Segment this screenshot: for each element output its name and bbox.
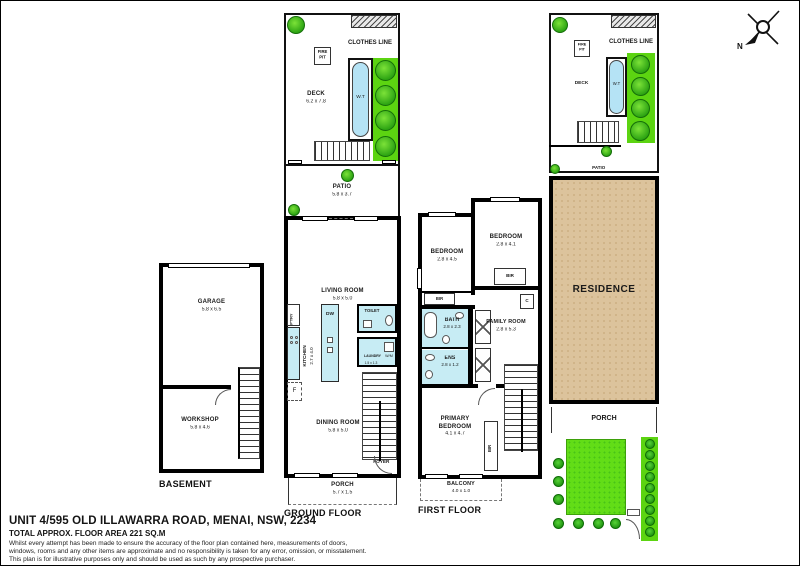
balcony: BALCONY 4.0 x 1.0 [420, 479, 502, 501]
first-floor-plan: BEDROOM 2.8 x 4.5 BEDROOM 2.8 x 4.1 BIR … [418, 198, 542, 508]
primary-name: PRIMARY BEDROOM [426, 416, 484, 431]
family-name: FAMILY ROOM [478, 319, 534, 326]
basin-fixture [363, 320, 372, 328]
first-floor-stairs [504, 364, 538, 451]
address-line: UNIT 4/595 OLD ILLAWARRA ROAD, MENAI, NS… [9, 515, 649, 527]
cooktop-burner [290, 341, 293, 344]
fridge: F [287, 382, 302, 401]
fire-pit-label: FIRE PIT [578, 43, 587, 53]
room-label-porch: PORCH 5.7 x 1.5 [289, 482, 396, 497]
cooktop-burner [290, 336, 293, 339]
room-label-workshop: WORKSHOP 5.8 x 4.6 [163, 417, 237, 432]
ensuite: ENS 2.8 x 1.2 [422, 350, 468, 384]
toilet-fixture [425, 370, 433, 379]
ground-deck-area: CLOTHES LINE FIRE PIT DECK 6.2 x 7.8 W.T [284, 13, 400, 166]
site-porch: PORCH [551, 407, 657, 433]
room-label-bedroom-right: BEDROOM 2.8 x 4.1 [481, 234, 531, 249]
patio-name: PATIO [286, 184, 398, 192]
tree-icon [630, 121, 650, 141]
tree-icon [288, 204, 300, 216]
porch-label: PORCH [552, 415, 656, 424]
room-label-family: FAMILY ROOM 2.8 x 5.3 [475, 319, 537, 334]
room-label-kitchen: KITCHEN 2.7 x 4.0 [302, 327, 316, 385]
bir-label: BIR [429, 297, 449, 302]
door-arc [478, 388, 495, 405]
address-block: UNIT 4/595 OLD ILLAWARRA ROAD, MENAI, NS… [9, 515, 649, 564]
deck-stairs [314, 141, 370, 161]
shrub-icon [645, 472, 655, 482]
clothes-line-label: CLOTHES LINE [342, 30, 398, 50]
bath-name: BATH [438, 318, 465, 324]
window [382, 160, 396, 164]
deck-name: DECK [575, 81, 589, 87]
kitchen-counter [287, 327, 300, 380]
porch-dims: 5.7 x 1.5 [297, 490, 388, 496]
room-label-ens: ENS 2.8 x 1.2 [434, 355, 466, 370]
shrub-icon [645, 439, 655, 449]
room-label-balcony: BALCONY 4.0 x 1.0 [421, 481, 501, 496]
basement-plan: GARAGE 5.8 x 6.5 WORKSHOP 5.8 x 4.6 [159, 263, 264, 473]
pantry-label: P'TRY [290, 313, 294, 325]
room-label-living: LIVING ROOM 5.8 x 5.0 [288, 288, 397, 303]
room-label-bedroom-left: BEDROOM 2.8 x 4.5 [424, 249, 470, 264]
clothes-line-text: CLOTHES LINE [609, 39, 653, 45]
living-name: LIVING ROOM [288, 288, 397, 296]
shrub-icon [645, 483, 655, 493]
water-tank-box: W.T [348, 58, 373, 141]
window [354, 216, 378, 221]
wall [468, 305, 473, 388]
site-plan: CLOTHES LINE FIRE PIT DECK W.T PATIO RES… [549, 13, 661, 545]
linen-closet [475, 348, 491, 382]
garage-name: GARAGE [163, 299, 260, 307]
first-floor-title: FIRST FLOOR [418, 505, 481, 515]
bedroom-name: BEDROOM [424, 249, 470, 257]
kitchen-name: KITCHEN [303, 333, 308, 379]
dishwasher-label: DW [324, 312, 337, 318]
compass: N [731, 5, 793, 55]
bir-label: BIR [488, 443, 492, 454]
cooktop-burner [295, 336, 298, 339]
tree-icon [287, 16, 305, 34]
bir-label: BIR [499, 274, 522, 280]
kitchen-dims: 2.7 x 4.0 [309, 334, 314, 378]
tree-icon [375, 85, 396, 106]
window [288, 160, 302, 164]
patio-name: PATIO [592, 166, 605, 172]
bir-closet: BIR [424, 293, 455, 305]
floorplan-page: GARAGE 5.8 x 6.5 WORKSHOP 5.8 x 4.6 BASE… [0, 0, 800, 566]
closet-label: C [523, 299, 532, 305]
water-tank-box: W.T [606, 57, 627, 117]
toilet-fixture [385, 315, 393, 326]
toilet-room: TOILET [357, 304, 397, 333]
clothes-line-icon [351, 15, 397, 28]
garden-strip [373, 58, 398, 161]
deck-stairs [577, 121, 619, 143]
basement-stairs [238, 367, 260, 459]
ground-stairs [362, 372, 397, 460]
disclaimer-line: windows, rooms and any other items are a… [9, 548, 649, 556]
residence-block: RESIDENCE [549, 176, 659, 404]
clothes-line-icon [611, 15, 656, 28]
cooktop-burner [295, 341, 298, 344]
sink [327, 337, 333, 343]
pantry: P'TRY [287, 304, 300, 326]
shrub-icon [645, 450, 655, 460]
tree-icon [341, 169, 354, 182]
shrub-icon [645, 494, 655, 504]
sliding-door [329, 218, 353, 219]
window [168, 263, 250, 268]
shrub-icon [645, 505, 655, 515]
bir-closet: BIR [484, 421, 498, 471]
door-arc [215, 389, 231, 405]
room-label-patio: PATIO 5.8 x 3.7 [286, 184, 398, 199]
room-label-primary: PRIMARY BEDROOM 4.1 x 4.7 [426, 416, 484, 439]
wall [418, 384, 478, 388]
bathroom: BATH 2.8 x 2.3 [422, 309, 468, 347]
laundry-dims: 1.5 x 1.3 [364, 362, 377, 366]
window [490, 197, 520, 202]
compass-circle [757, 21, 769, 33]
toilet-fixture [442, 335, 450, 344]
garage-dims: 5.8 x 6.5 [170, 307, 252, 313]
wall [471, 198, 475, 295]
bath-dims: 2.8 x 2.3 [440, 325, 464, 331]
fridge-label: F [288, 388, 301, 396]
window [428, 212, 456, 217]
tree-icon [375, 136, 396, 157]
balcony-dims: 4.0 x 1.0 [429, 489, 493, 495]
ens-name: ENS [436, 356, 463, 362]
dining-dims: 5.8 x 5.0 [296, 428, 381, 434]
ground-patio-area: PATIO 5.8 x 3.7 [284, 166, 400, 216]
room-label-deck: DECK 6.2 x 7.8 [292, 91, 340, 106]
bir-closet: BIR [494, 268, 526, 285]
tree-icon [631, 77, 650, 96]
fire-pit: FIRE PIT [574, 40, 590, 57]
deck-dims: 6.2 x 7.8 [296, 99, 337, 105]
ground-main-building: LIVING ROOM 5.8 x 5.0 P'TRY KITCHEN 2.7 … [284, 216, 401, 478]
porch-name: PORCH [289, 482, 396, 490]
primary-dims: 4.1 x 4.7 [430, 431, 479, 437]
linen-closet: C [520, 294, 534, 309]
bedroom-name: BEDROOM [481, 234, 531, 242]
wt-label: W.T [352, 95, 369, 101]
garden-strip [627, 53, 655, 143]
tree-icon [552, 17, 568, 33]
dining-name: DINING ROOM [288, 420, 388, 428]
front-lawn [566, 439, 626, 515]
window [417, 268, 422, 289]
tree-icon [550, 164, 560, 174]
balcony-name: BALCONY [425, 481, 497, 488]
deck-label: DECK [565, 70, 599, 90]
shrub-icon [645, 461, 655, 471]
tree-icon [375, 60, 396, 81]
deck-name: DECK [292, 91, 340, 99]
wall [471, 286, 542, 290]
workshop-dims: 5.8 x 4.6 [169, 425, 232, 431]
wall [538, 198, 542, 479]
room-label-dining: DINING ROOM 5.8 x 5.0 [288, 420, 388, 435]
basement-title: BASEMENT [159, 479, 212, 489]
room-label-garage: GARAGE 5.8 x 6.5 [163, 299, 260, 314]
fire-pit-label: FIRE PIT [317, 50, 328, 61]
compass-arrow [745, 33, 759, 45]
bedroom-dims: 2.8 x 4.5 [427, 257, 466, 263]
shrub-icon [553, 494, 564, 505]
clothes-line-text: CLOTHES LINE [348, 40, 392, 46]
tree-icon [631, 99, 650, 118]
toilet-label: TOILET [363, 309, 381, 314]
washing-machine [384, 342, 394, 352]
wall [163, 385, 231, 389]
ens-dims: 2.8 x 1.2 [438, 363, 462, 369]
wm-label: W/M [384, 354, 394, 359]
laundry-label: LAUNDRY [364, 355, 378, 359]
residence-label: RESIDENCE [553, 284, 655, 297]
patio-label: PATIO [577, 155, 621, 175]
wall [418, 347, 468, 349]
bedroom-dims: 2.8 x 4.1 [485, 242, 528, 248]
patio-dims: 5.8 x 3.7 [294, 192, 389, 198]
laundry-room: LAUNDRY W/M 1.5 x 1.3 [357, 337, 397, 367]
entry-door-arc [374, 456, 392, 474]
kitchen-island: DW [321, 304, 339, 382]
disclaimer-line: This plan is for illustrative purposes o… [9, 556, 649, 564]
ground-porch: PORCH 5.7 x 1.5 [288, 478, 397, 505]
disclaimer-line: Whilst every attempt has been made to en… [9, 540, 649, 548]
compass-north-label: N [737, 42, 743, 51]
fire-pit: FIRE PIT [314, 47, 331, 65]
family-dims: 2.8 x 5.3 [480, 327, 533, 333]
living-dims: 5.8 x 5.0 [296, 296, 389, 302]
shrub-icon [553, 476, 564, 487]
stair-rail [521, 389, 523, 452]
sink [327, 347, 333, 353]
floor-area-line: TOTAL APPROX. FLOOR AREA 221 SQ.M [9, 529, 649, 538]
workshop-name: WORKSHOP [163, 417, 237, 425]
wt-label: W.T [611, 82, 623, 87]
tree-icon [631, 55, 650, 74]
room-label-bath: BATH 2.8 x 2.3 [436, 317, 468, 332]
clothes-line-label: CLOTHES LINE [603, 29, 659, 49]
tree-icon [375, 110, 396, 131]
window [302, 216, 328, 221]
disclaimer-text: Whilst every attempt has been made to en… [9, 540, 649, 564]
shrub-icon [553, 458, 564, 469]
